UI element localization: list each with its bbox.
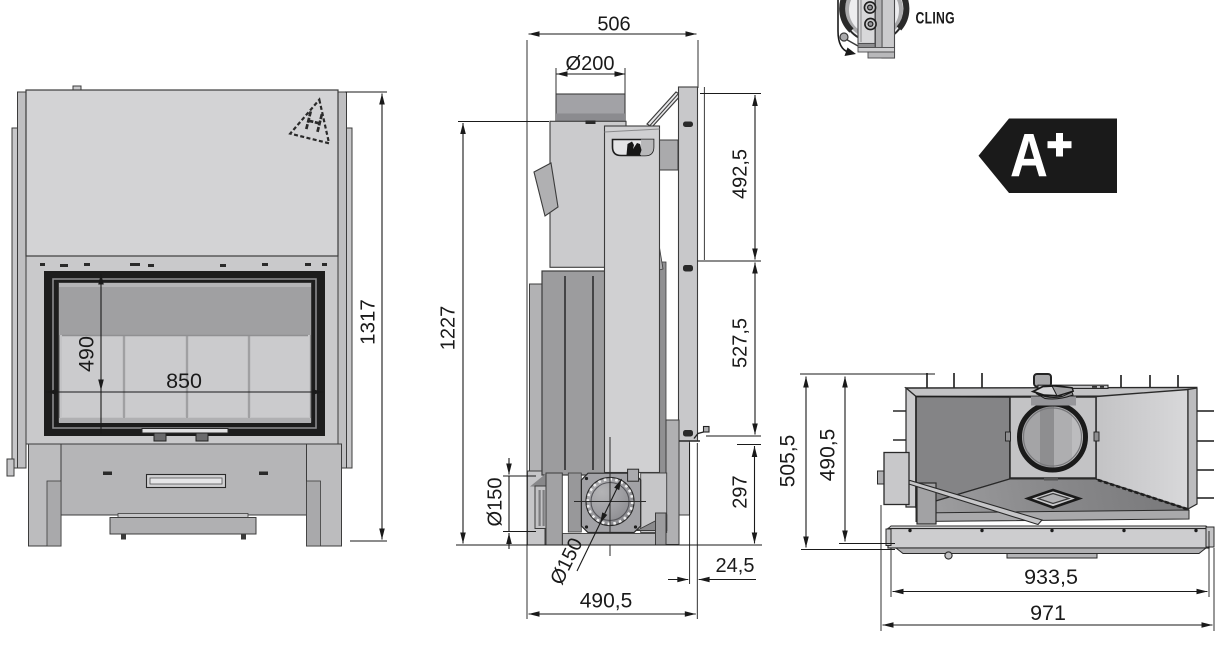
svg-text:Ø200: Ø200 [566, 53, 615, 75]
svg-text:490,5: 490,5 [580, 590, 633, 613]
svg-text:492,5: 492,5 [729, 149, 751, 199]
svg-text:490: 490 [75, 336, 99, 372]
svg-text:490,5: 490,5 [817, 429, 840, 482]
svg-text:1227: 1227 [437, 306, 459, 351]
svg-text:CLING: CLING [916, 10, 955, 28]
svg-text:A: A [1010, 122, 1048, 191]
svg-text:971: 971 [1030, 601, 1066, 625]
svg-text:297: 297 [729, 475, 751, 508]
svg-text:1317: 1317 [356, 299, 379, 345]
svg-text:Ø150: Ø150 [484, 478, 506, 527]
svg-text:506: 506 [597, 14, 630, 36]
svg-text:933,5: 933,5 [1024, 565, 1078, 589]
svg-text:505,5: 505,5 [777, 435, 800, 488]
svg-text:850: 850 [166, 369, 202, 393]
svg-text:527,5: 527,5 [729, 318, 751, 368]
svg-text:24,5: 24,5 [716, 555, 755, 577]
